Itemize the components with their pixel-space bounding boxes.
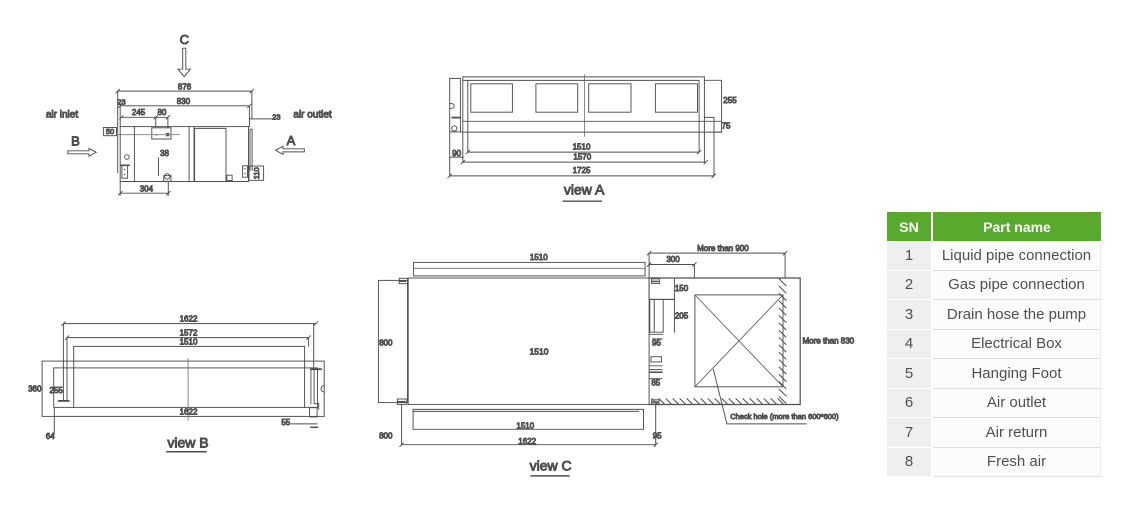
- svg-text:1725: 1725: [573, 166, 591, 175]
- svg-text:1510: 1510: [530, 346, 549, 356]
- svg-text:75: 75: [722, 121, 731, 130]
- svg-text:110: 110: [252, 167, 261, 179]
- svg-text:view B: view B: [167, 435, 208, 451]
- svg-text:205: 205: [675, 312, 689, 321]
- svg-text:More than 830: More than 830: [803, 336, 855, 345]
- svg-text:245: 245: [132, 108, 146, 117]
- svg-text:1570: 1570: [573, 153, 591, 162]
- svg-text:A: A: [287, 133, 296, 148]
- svg-text:More than 900: More than 900: [697, 244, 749, 253]
- svg-text:304: 304: [140, 184, 154, 193]
- svg-text:800: 800: [379, 432, 393, 441]
- svg-text:55: 55: [281, 418, 290, 427]
- svg-text:830: 830: [177, 97, 191, 106]
- svg-text:300: 300: [666, 255, 680, 264]
- svg-text:1510: 1510: [573, 143, 591, 152]
- svg-text:80: 80: [157, 108, 166, 117]
- svg-text:Check hole (more than 600*600): Check hole (more than 600*600): [730, 412, 839, 421]
- svg-text:255: 255: [723, 96, 737, 105]
- svg-text:air inlet: air inlet: [46, 109, 78, 120]
- svg-text:23: 23: [272, 112, 280, 121]
- svg-text:95: 95: [653, 432, 662, 441]
- svg-text:38: 38: [160, 149, 169, 158]
- svg-text:255: 255: [50, 386, 64, 395]
- svg-text:50: 50: [106, 127, 114, 136]
- svg-text:B: B: [71, 134, 80, 149]
- svg-text:view A: view A: [564, 182, 605, 198]
- svg-text:air outlet: air outlet: [293, 109, 332, 120]
- svg-text:1510: 1510: [530, 253, 548, 262]
- svg-text:64: 64: [46, 432, 55, 441]
- svg-text:876: 876: [178, 83, 192, 92]
- svg-text:95: 95: [652, 338, 661, 347]
- svg-text:150: 150: [675, 284, 689, 293]
- svg-text:90: 90: [452, 149, 461, 158]
- svg-text:1622: 1622: [180, 408, 198, 417]
- svg-text:1622: 1622: [180, 315, 198, 324]
- svg-text:1510: 1510: [180, 338, 198, 347]
- svg-text:85: 85: [651, 379, 660, 388]
- svg-text:360: 360: [28, 385, 42, 394]
- svg-text:1510: 1510: [516, 422, 534, 431]
- svg-text:view C: view C: [530, 457, 572, 473]
- svg-text:1572: 1572: [180, 329, 198, 338]
- svg-text:800: 800: [379, 339, 393, 348]
- svg-text:C: C: [180, 32, 189, 47]
